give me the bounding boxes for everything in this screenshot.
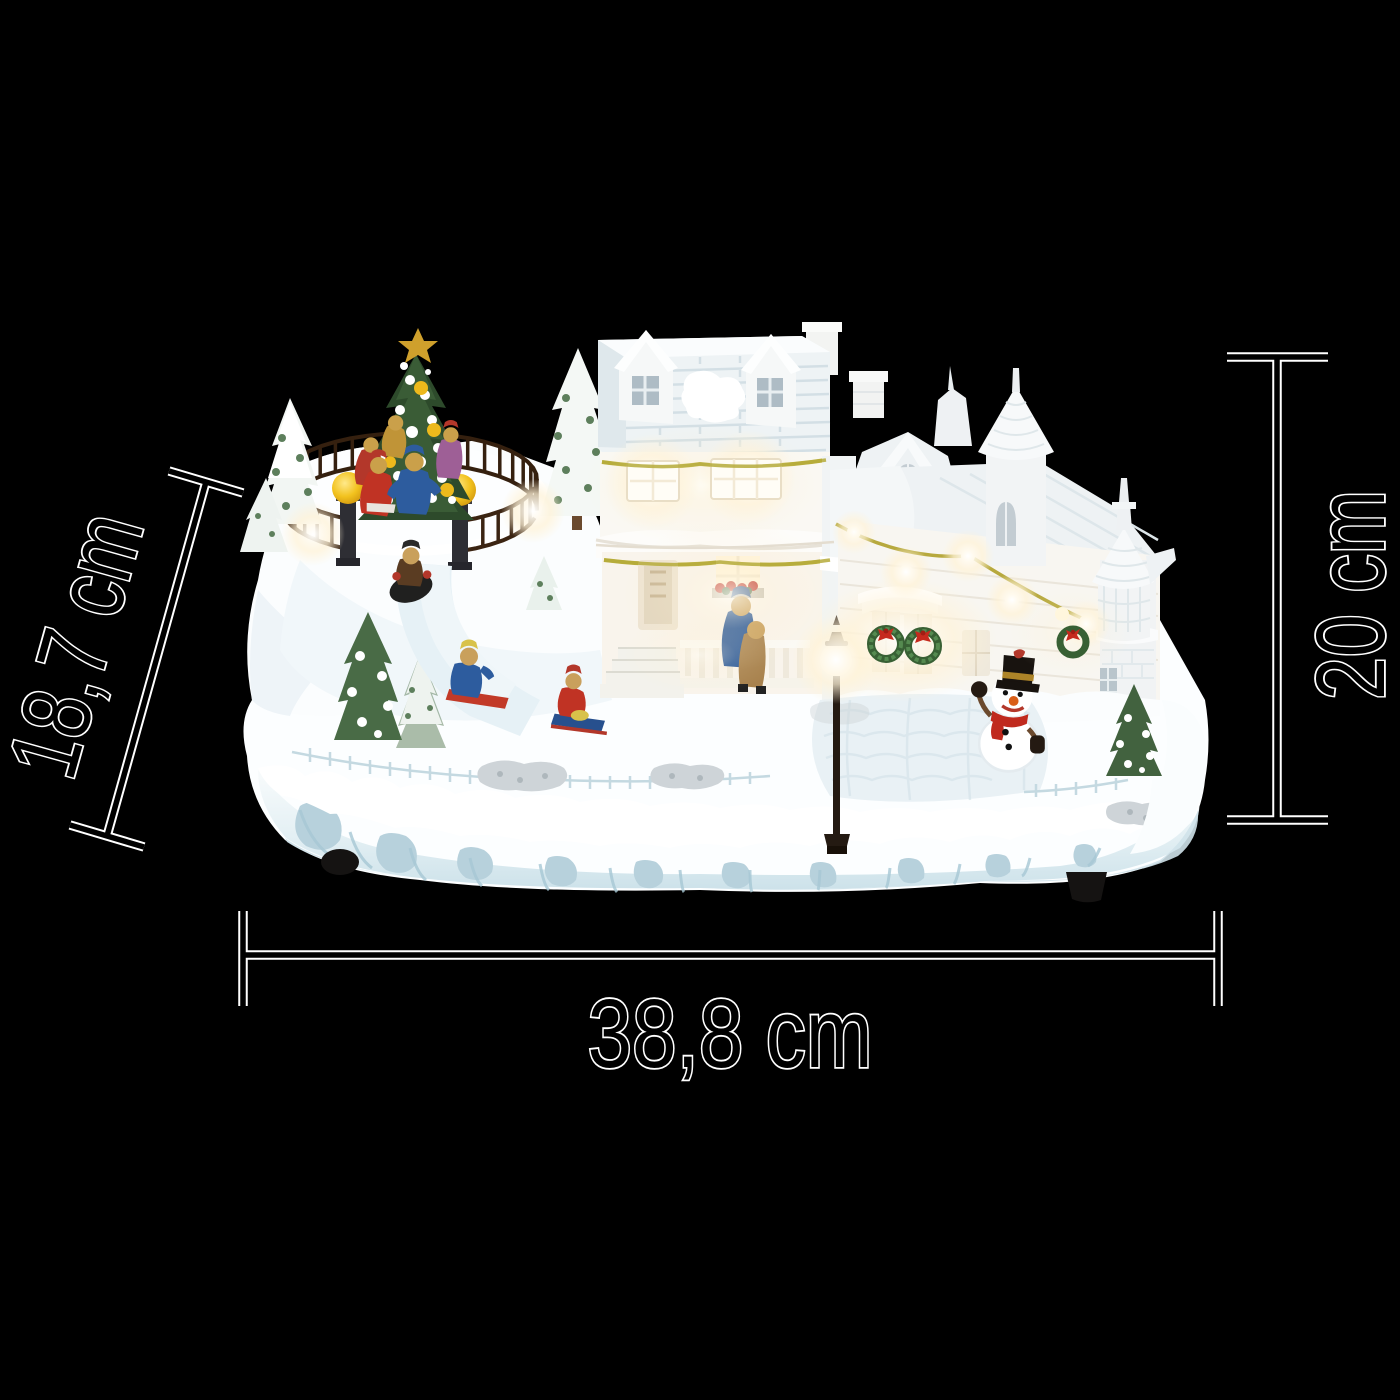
svg-text:38,8 cm: 38,8 cm bbox=[588, 979, 873, 1088]
svg-text:20 cm: 20 cm bbox=[1296, 490, 1400, 700]
